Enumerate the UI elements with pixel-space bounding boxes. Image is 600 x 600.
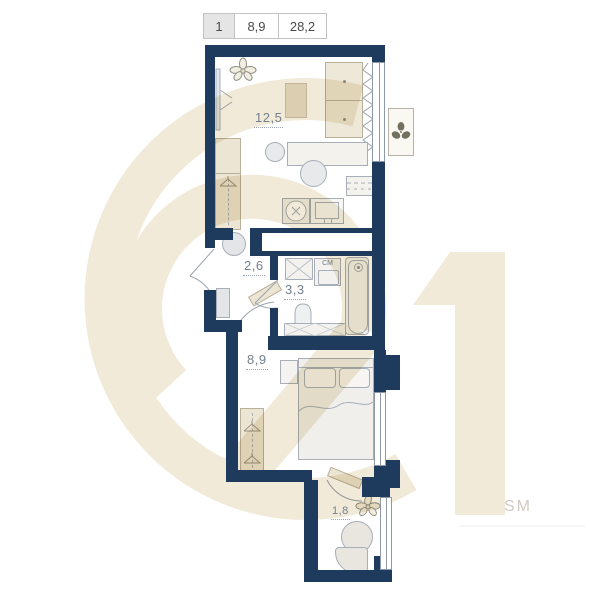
wall-segment	[268, 336, 385, 350]
room-label-hall: 2,6	[243, 258, 265, 273]
wall-segment	[374, 350, 386, 392]
room-label-living: 12,5	[254, 110, 283, 125]
living-area-cell: 8,9	[235, 13, 279, 39]
room-label-bath: 3,3	[284, 282, 306, 297]
flat-number-cell: 1	[203, 13, 235, 39]
total-area-cell: 28,2	[279, 13, 327, 39]
wall-segment	[205, 45, 215, 248]
wall-segment	[205, 228, 233, 240]
window	[372, 62, 385, 162]
wall-segment	[386, 355, 400, 390]
wall-segment	[372, 45, 385, 62]
wall-segment	[362, 477, 390, 497]
area-table: 1 8,9 28,2	[203, 13, 327, 39]
window	[380, 497, 392, 570]
wall-segment	[270, 256, 278, 280]
room-label-balcony: 1,8	[331, 505, 350, 517]
floor-plan: 1 8,9 28,2	[0, 0, 600, 600]
wall-segment	[205, 45, 385, 57]
wall-segment	[304, 480, 318, 582]
wall-segment	[214, 320, 242, 332]
watermark-21-seal: SM	[0, 0, 600, 600]
wall-segment	[226, 332, 238, 482]
duct	[262, 233, 372, 251]
wall-segment	[226, 470, 312, 482]
watermark-sm-text: SM	[504, 498, 532, 515]
window	[374, 392, 386, 466]
room-label-bedroom: 8,9	[246, 352, 268, 367]
